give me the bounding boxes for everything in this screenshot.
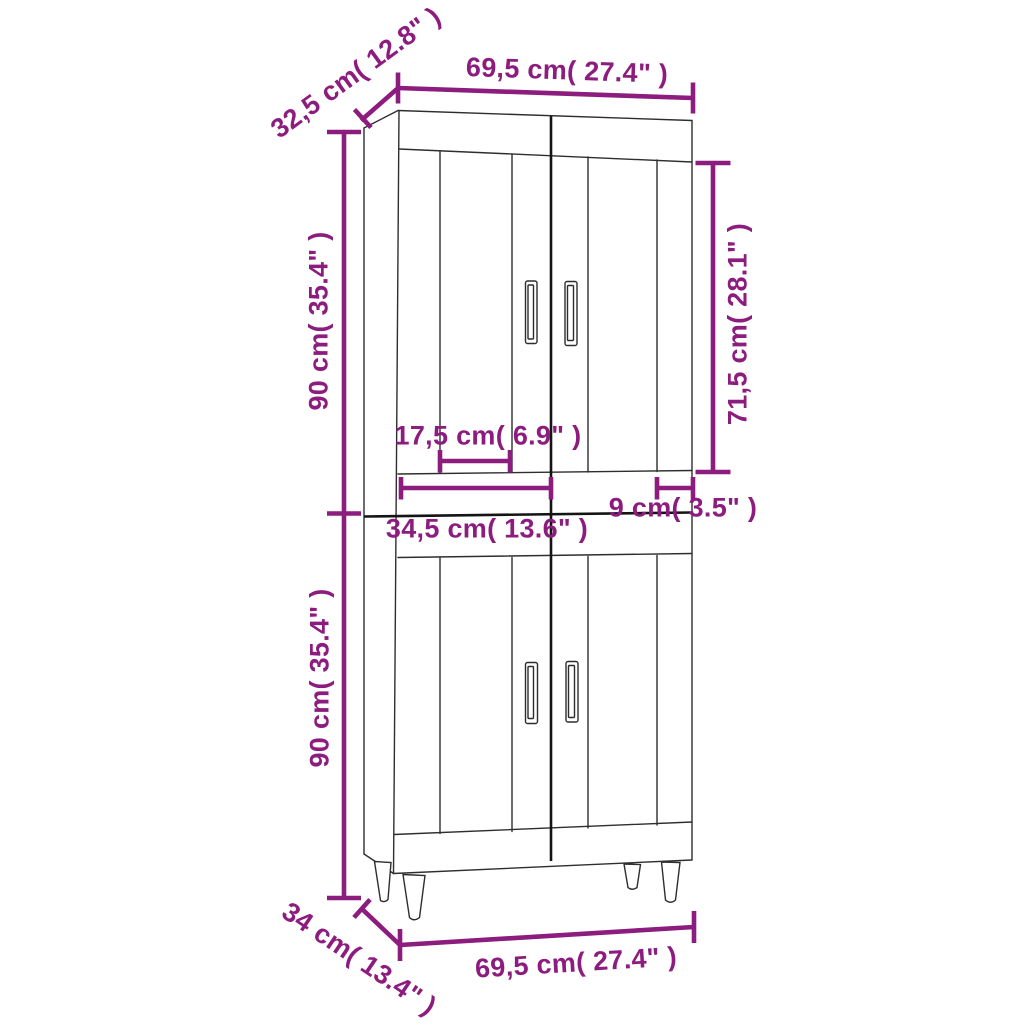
cabinet-bottom-edge	[394, 860, 693, 874]
dim-line-door-width	[401, 477, 551, 500]
upper-left-door-handle	[526, 281, 538, 344]
upper-top-rail-line	[399, 149, 692, 162]
upper-right-door-handle	[565, 282, 577, 346]
lower-unit-top-line	[398, 554, 692, 558]
cabinet-leg	[624, 864, 641, 889]
cabinet-leg	[662, 862, 681, 902]
cabinet-top-edge	[398, 111, 692, 121]
product-dimension-image: 69,5 cm( 27.4" ) 32,5 cm( 12.8" ) 90 cm(…	[0, 0, 1024, 1024]
dim-line-depth-bottom	[354, 900, 400, 946]
cabinet-leg	[403, 875, 425, 920]
cabinet-leg	[375, 862, 392, 902]
lower-left-door-handle	[526, 663, 538, 724]
dim-label-panel-width: 17,5 cm( 6.9" )	[395, 421, 582, 452]
dim-label-lower-height: 90 cm( 35.4" )	[305, 588, 336, 767]
dim-line-panel-width	[440, 450, 510, 473]
cabinet-front-left-edge	[394, 111, 400, 874]
dim-label-door-height: 71,5 cm( 28.1" )	[723, 223, 754, 425]
dim-label-door-width: 34,5 cm( 13.6" )	[386, 514, 588, 545]
lower-right-door-handle	[566, 662, 578, 723]
lower-door-bottom-line	[394, 822, 692, 835]
diagram-canvas	[0, 0, 1024, 1024]
dim-label-stile-width: 9 cm( 3.5" )	[609, 493, 757, 524]
dim-label-upper-height: 90 cm( 35.4" )	[304, 231, 335, 410]
